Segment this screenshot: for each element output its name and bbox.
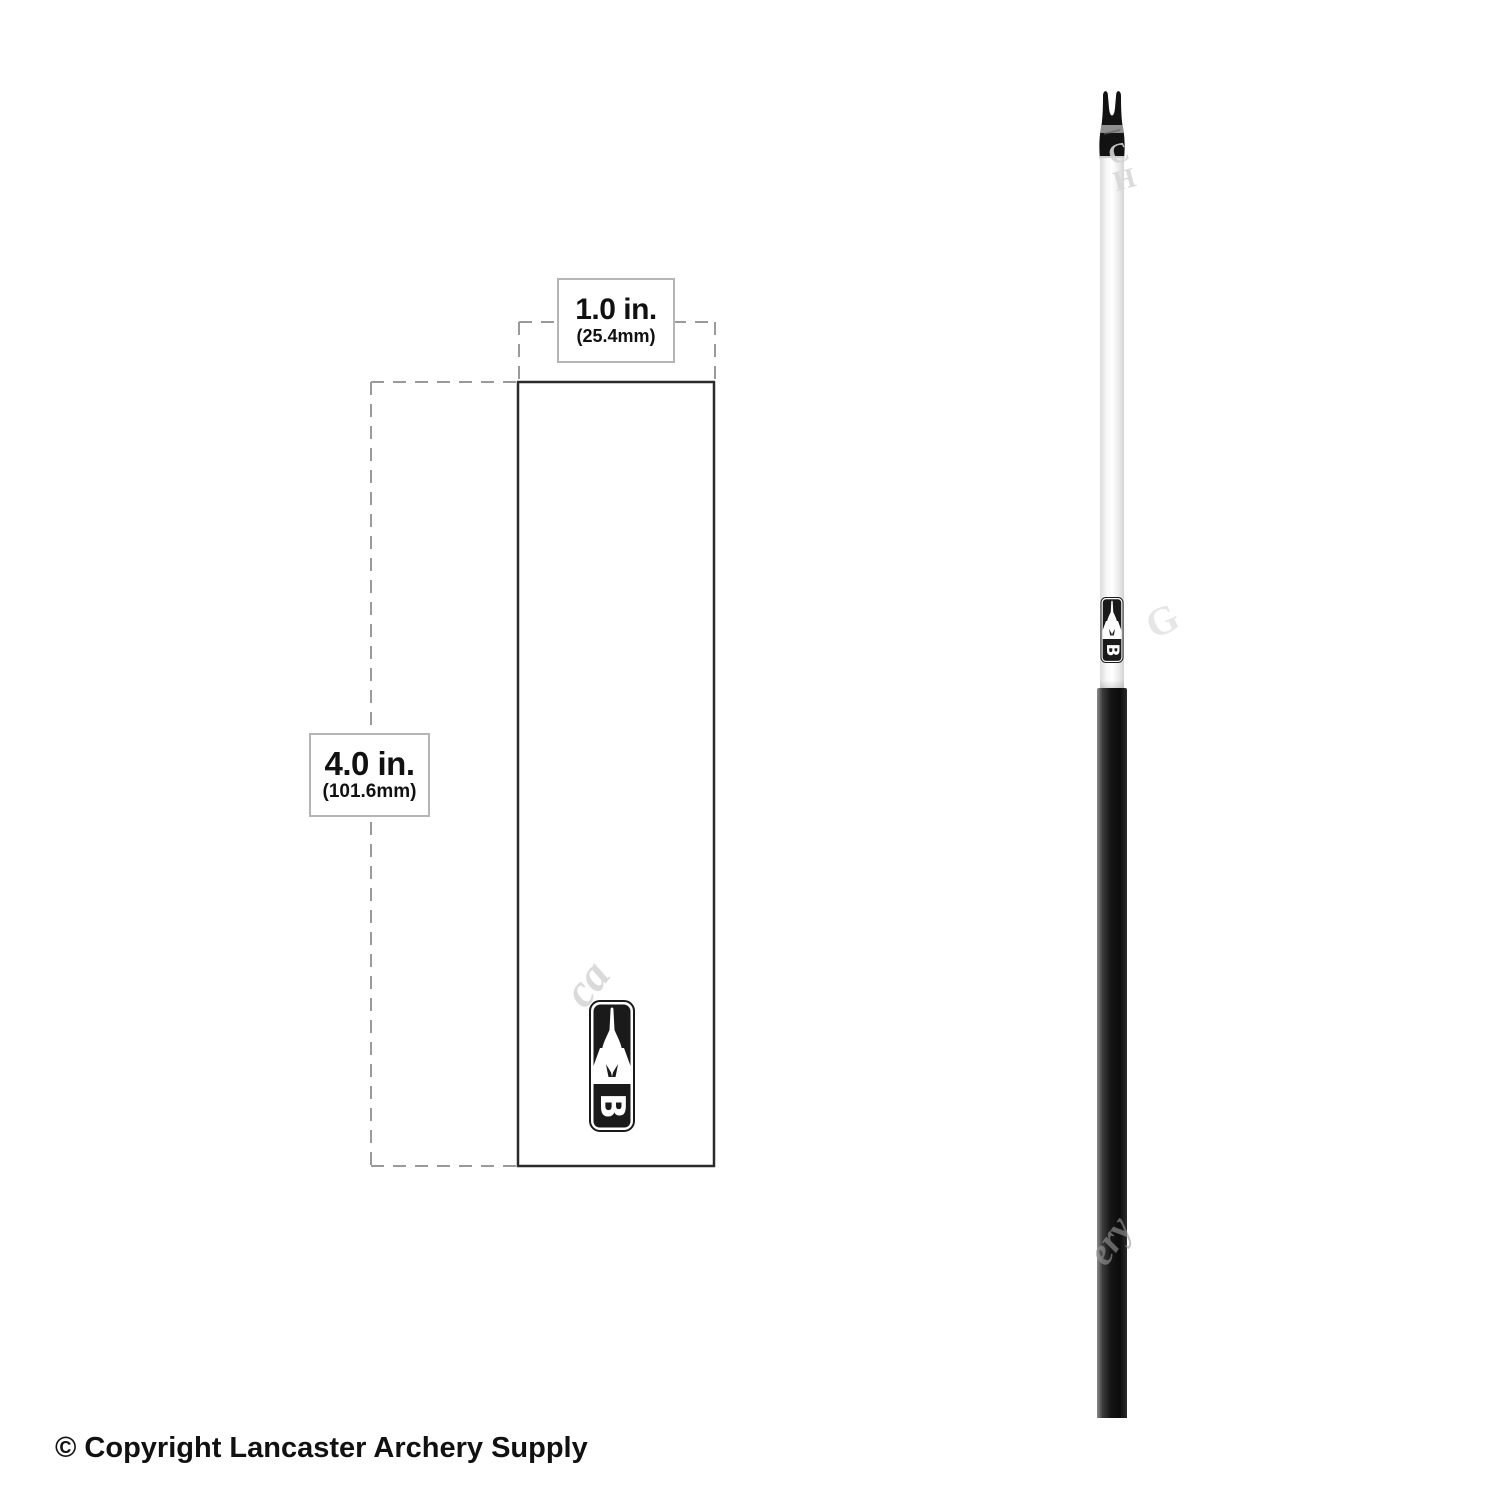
copyright-text: © Copyright Lancaster Archery Supply bbox=[55, 1432, 588, 1465]
arrow-wrap-bohning-logo-icon bbox=[1100, 597, 1124, 663]
width-dimension-label: 1.0 in. (25.4mm) bbox=[557, 278, 675, 363]
height-dimension-label: 4.0 in. (101.6mm) bbox=[309, 733, 430, 817]
dimension-lines bbox=[0, 0, 1500, 1500]
width-metric-value: (25.4mm) bbox=[576, 326, 655, 347]
product-image-canvas: 1.0 in. (25.4mm) 4.0 in. (101.6mm) CHcaG… bbox=[0, 0, 1500, 1500]
arrow-nock bbox=[1094, 86, 1130, 164]
width-value: 1.0 in. bbox=[575, 294, 657, 326]
height-metric-value: (101.6mm) bbox=[323, 781, 417, 803]
arrow-shaft-black-section bbox=[1097, 688, 1127, 1418]
height-value: 4.0 in. bbox=[324, 747, 414, 782]
bohning-logo-icon bbox=[589, 1000, 635, 1132]
